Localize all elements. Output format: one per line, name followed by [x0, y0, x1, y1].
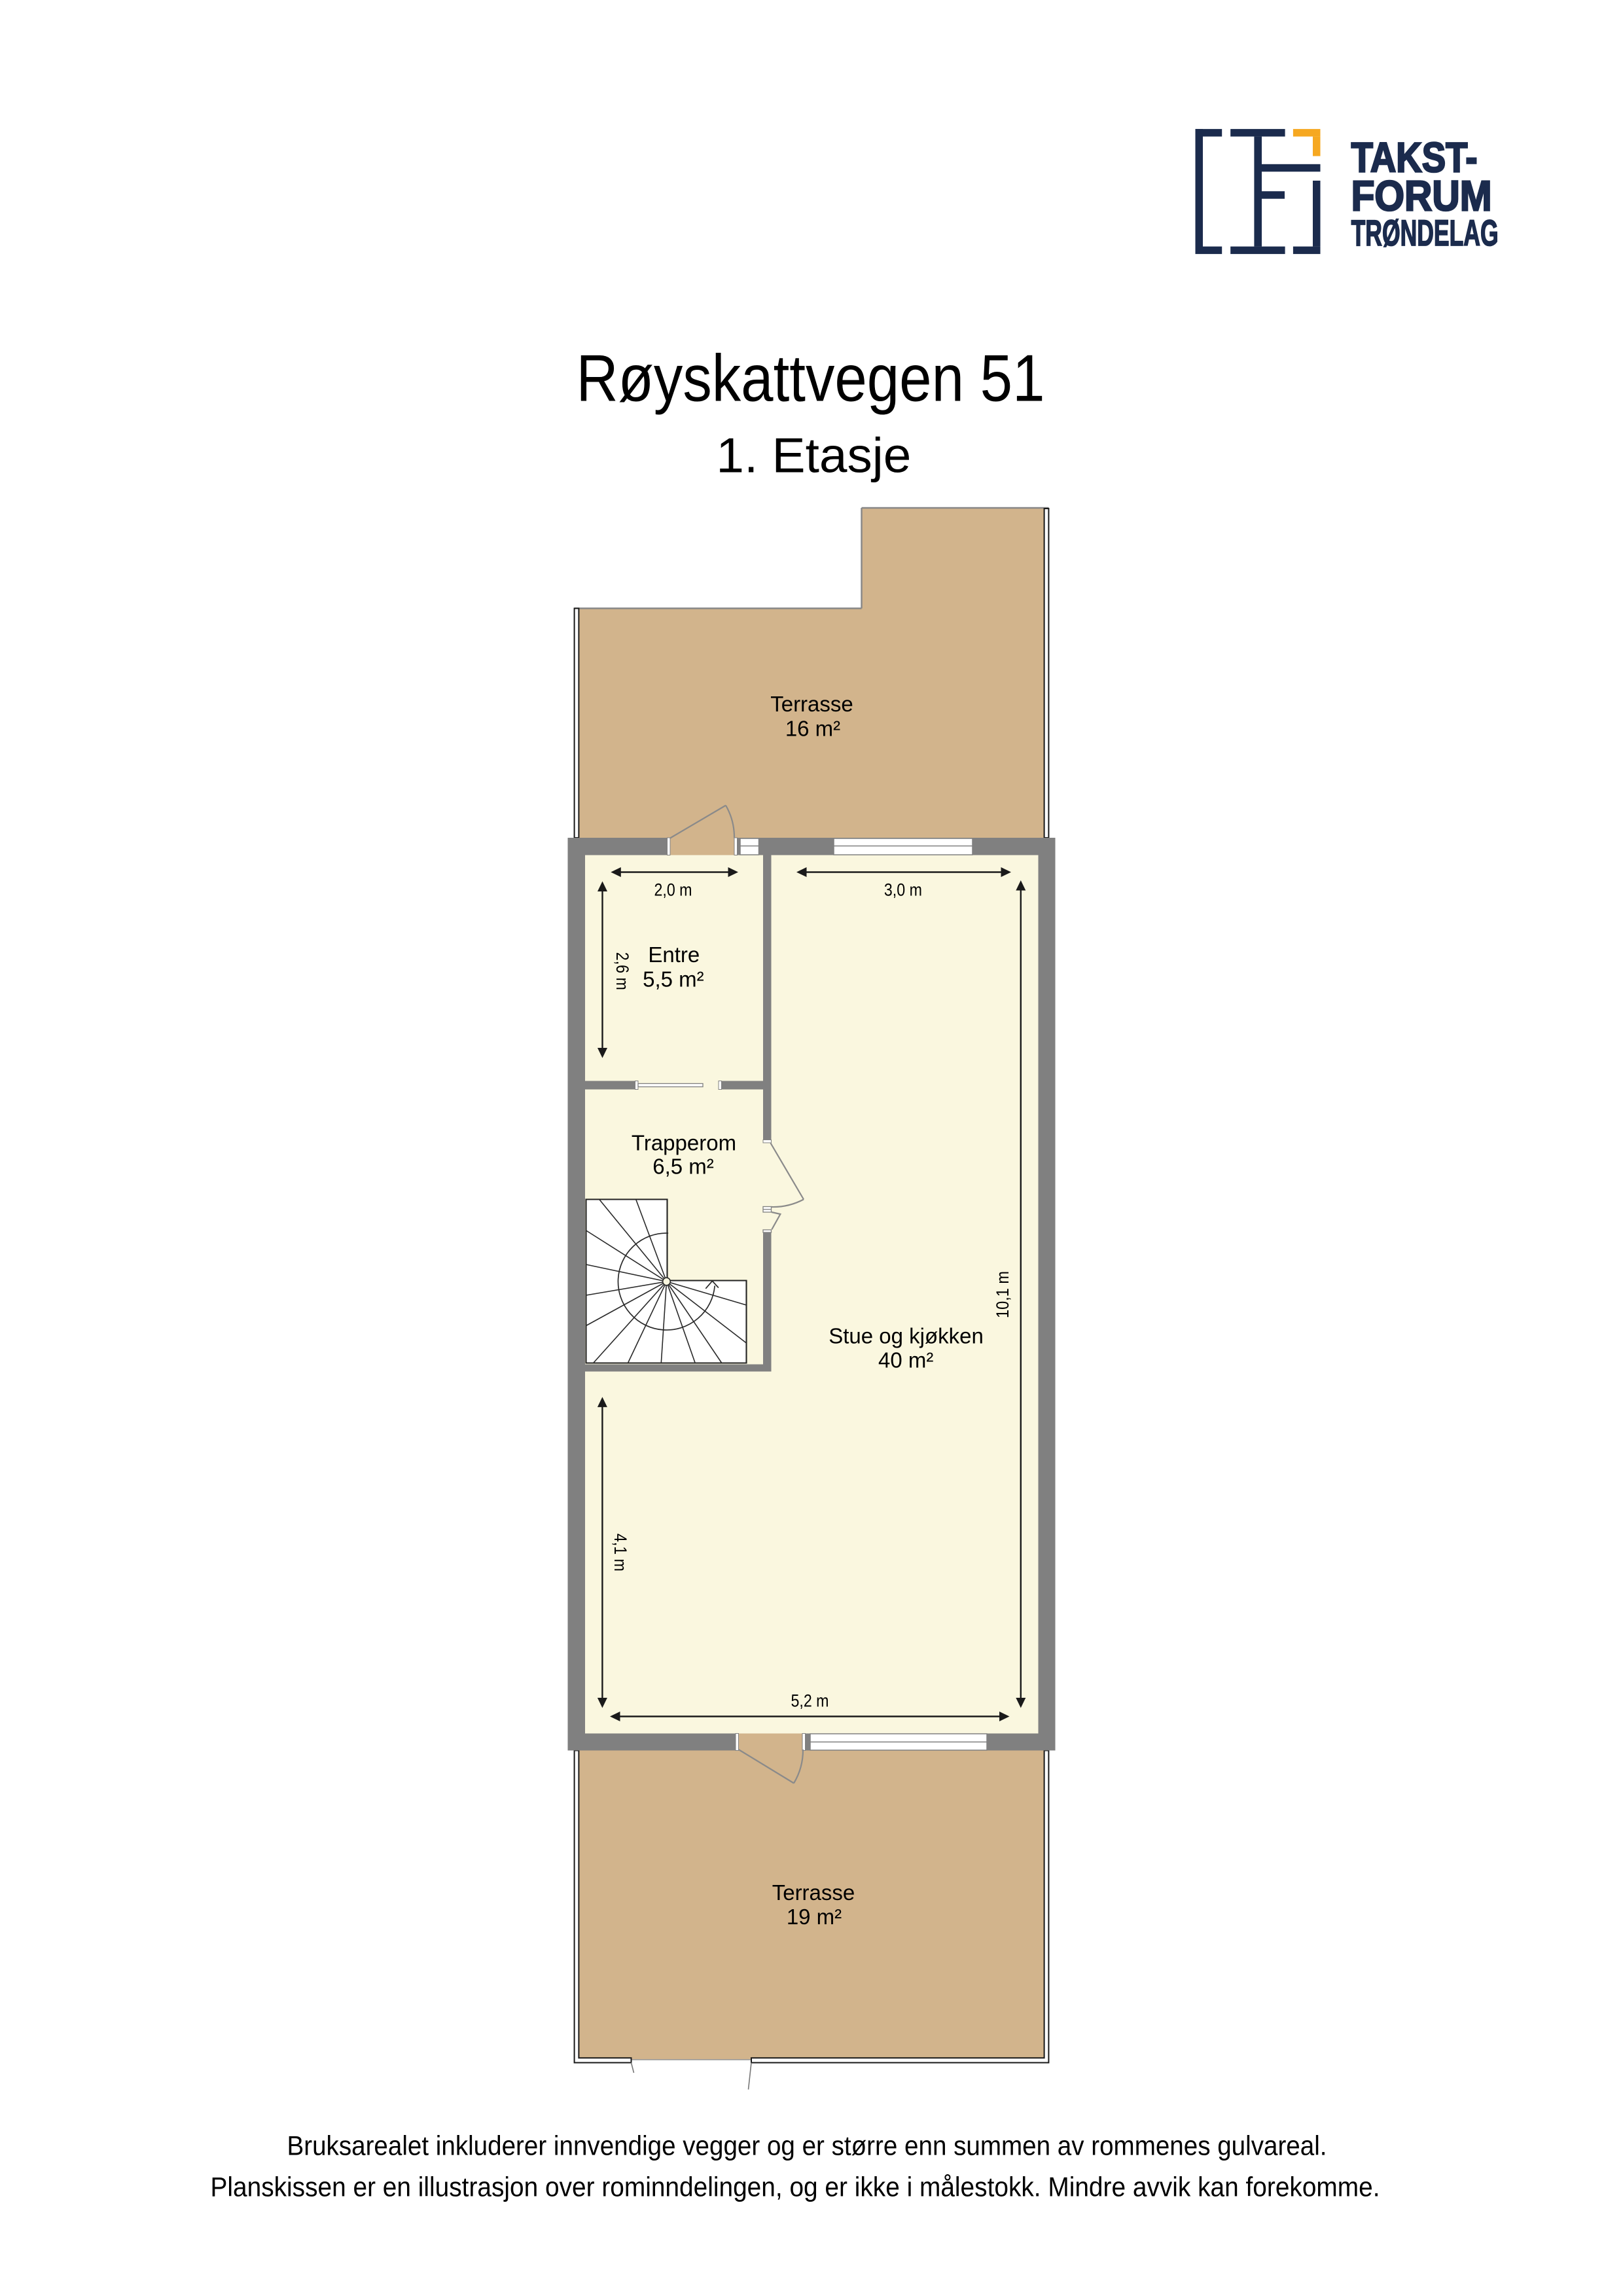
- svg-text:Røyskattvegen 51: Røyskattvegen 51: [577, 342, 1045, 415]
- svg-text:6,5 m²: 6,5 m²: [652, 1155, 714, 1179]
- svg-text:16 m²: 16 m²: [785, 717, 840, 741]
- svg-text:40 m²: 40 m²: [878, 1348, 933, 1372]
- svg-text:1. Etasje: 1. Etasje: [716, 428, 911, 483]
- svg-text:TRØNDELAG: TRØNDELAG: [1351, 212, 1499, 253]
- svg-text:2,0 m: 2,0 m: [654, 880, 692, 900]
- svg-text:19 m²: 19 m²: [787, 1905, 842, 1929]
- svg-text:2,6 m: 2,6 m: [613, 952, 632, 990]
- svg-text:Terrasse: Terrasse: [772, 1880, 855, 1905]
- svg-text:Entre: Entre: [648, 942, 700, 967]
- svg-text:Bruksarealet inkluderer innven: Bruksarealet inkluderer innvendige vegge…: [287, 2130, 1327, 2161]
- svg-text:Stue og kjøkken: Stue og kjøkken: [829, 1324, 984, 1348]
- svg-text:Trapperom: Trapperom: [632, 1131, 736, 1155]
- svg-text:Planskissen er en illustrasjon: Planskissen er en illustrasjon over romi…: [211, 2172, 1380, 2202]
- svg-text:5,2 m: 5,2 m: [791, 1691, 829, 1710]
- svg-text:3,0 m: 3,0 m: [884, 880, 922, 900]
- svg-text:4,1 m: 4,1 m: [611, 1534, 630, 1571]
- svg-text:Terrasse: Terrasse: [770, 692, 853, 716]
- svg-text:10,1 m: 10,1 m: [993, 1271, 1012, 1318]
- svg-text:5,5 m²: 5,5 m²: [643, 967, 704, 992]
